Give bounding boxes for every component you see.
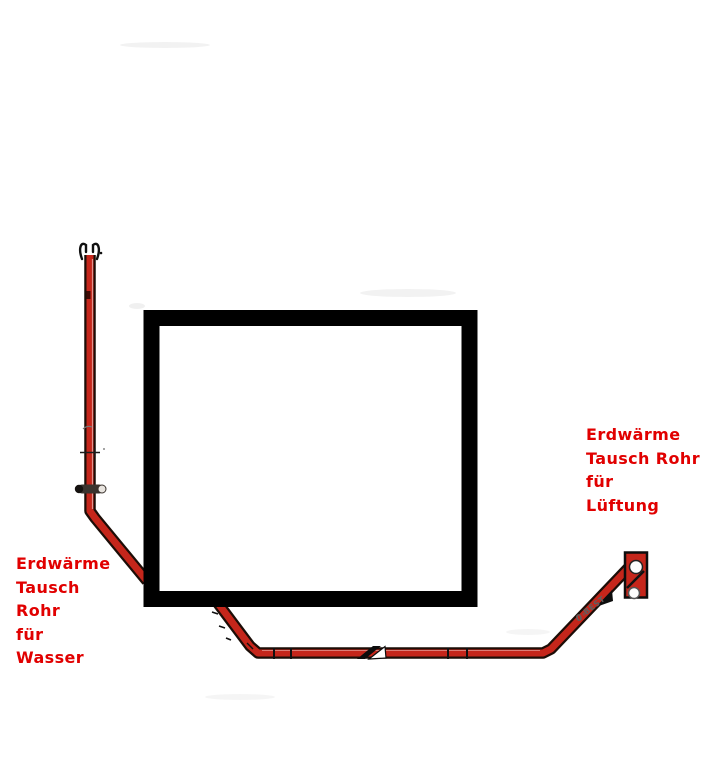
label-air-pipe: Erdwärme Tausch Rohr für Lüftung	[586, 423, 700, 517]
intake-opening-icon	[629, 588, 640, 599]
cap-dot	[100, 252, 103, 255]
smudge	[120, 42, 210, 48]
label-line: Tausch	[16, 576, 110, 600]
house-outline	[152, 318, 470, 599]
plan-drawing: Erdwärme Tausch Rohr für Wasser Erdwärme…	[0, 0, 707, 771]
smudge	[205, 694, 275, 700]
pipe-joint-tick	[212, 612, 218, 614]
label-line: Lüftung	[586, 494, 700, 518]
label-line: für	[586, 470, 700, 494]
air-intake-box	[625, 553, 647, 599]
label-line: Tausch Rohr	[586, 447, 700, 471]
coupling-end	[75, 485, 83, 493]
smudge	[360, 289, 456, 297]
pipe-joint-tick	[226, 638, 231, 640]
pipe-joint-tick	[87, 291, 91, 299]
label-line: Erdwärme	[16, 552, 110, 576]
label-line: Wasser	[16, 646, 110, 670]
tick-dot	[103, 448, 105, 450]
label-line: für	[16, 623, 110, 647]
intake-opening-icon	[630, 561, 643, 574]
pipe-joint-tick	[219, 626, 225, 628]
label-line: Rohr	[16, 599, 110, 623]
smudge	[129, 303, 145, 309]
label-water-pipe: Erdwärme Tausch Rohr für Wasser	[16, 552, 110, 670]
smudge	[506, 629, 550, 635]
coupling-end	[98, 485, 106, 493]
label-line: Erdwärme	[586, 423, 700, 447]
